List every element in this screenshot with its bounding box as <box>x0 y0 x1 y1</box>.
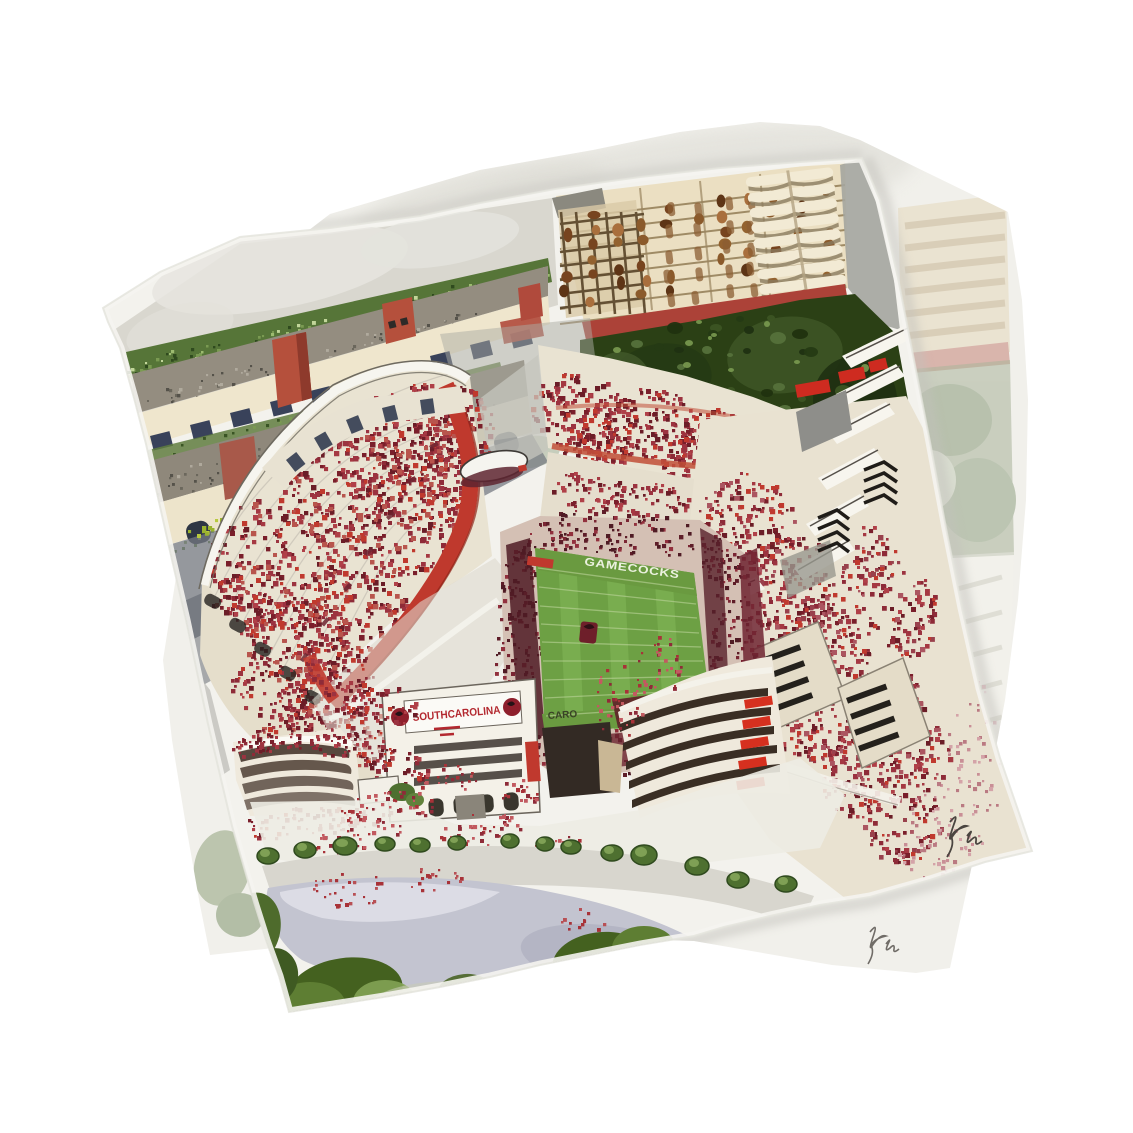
svg-text:CARO: CARO <box>547 709 577 722</box>
